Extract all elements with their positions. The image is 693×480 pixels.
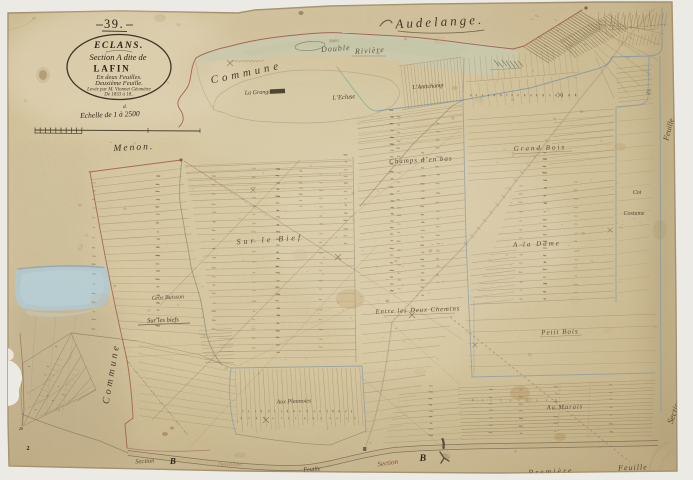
svg-text:Première: Première [527, 466, 574, 477]
svg-text:B: B [169, 456, 177, 466]
svg-text:Cot: Cot [633, 190, 642, 196]
svg-text:Deuxième Feuille.: Deuxième Feuille. [94, 80, 143, 87]
svg-text:ECLANS.: ECLANS. [93, 41, 144, 51]
svg-text:A la Dame: A la Dame [512, 239, 561, 249]
svg-text:39.: 39. [104, 17, 124, 31]
svg-text:Section A dite de: Section A dite de [89, 52, 146, 62]
svg-text:2: 2 [27, 446, 30, 452]
svg-text:Deuxième: Deuxième [217, 462, 243, 469]
svg-text:Feuille: Feuille [617, 462, 648, 472]
svg-text:Au Marais: Au Marais [546, 403, 584, 411]
svg-text:B: B [418, 453, 427, 464]
svg-text:26: 26 [19, 426, 23, 431]
svg-text:Mala: Mala [328, 38, 340, 44]
svg-text:LAFIN: LAFIN [93, 64, 130, 74]
svg-text:Aux Plannoies: Aux Plannoies [275, 398, 312, 405]
svg-text:Costume: Costume [624, 211, 645, 217]
svg-text:Feuille: Feuille [302, 467, 321, 474]
svg-text:De 1833 à 18..: De 1833 à 18.. [103, 93, 134, 98]
svg-text:Section: Section [135, 458, 154, 466]
svg-text:d.: d. [123, 105, 127, 110]
